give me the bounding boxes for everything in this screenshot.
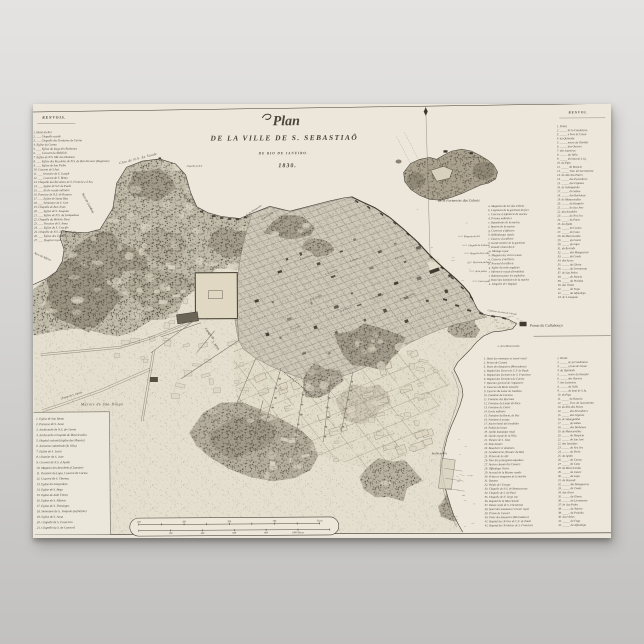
svg-text:3. Archeveche de N.S. de Carmo: 3. Archeveche de N.S. de Carmo [36,427,77,431]
svg-text:Fort. de la marche: Fort. de la marche [461,156,478,159]
svg-text:13. Eglise du Langridore: 13. Eglise du Langridore [36,482,68,486]
svg-text:Ile et Forteresse das Cobras: Ile et Forteresse das Cobras [436,199,479,203]
svg-text:Chapelle de la Bonne: Chapelle de la Bonne [468,244,491,247]
svg-text:Pointe du Callabouço: Pointe du Callabouço [528,324,562,328]
svg-text:2. Paroisse de S. Anne: 2. Paroisse de S. Anne [36,422,64,426]
svg-text:Saco do Alferez: Saco do Alferez [33,251,52,262]
svg-text:42. _____ da Alfandega: 42. _____ da Alfandega [558,523,586,527]
svg-text:12. Couvent de S. Theresa: 12. Couvent de S. Theresa [36,476,69,480]
svg-text:de la palais: de la palais [475,270,487,273]
svg-text:DE LA VILLE DE S. SEBASTIAÕ: DE LA VILLE DE S. SEBASTIAÕ [209,133,358,143]
svg-text:19. Eglise de S. Anna: 19. Eglise de S. Anna [36,515,63,519]
svg-text:42. Hopital des Tertiaires de: 42. Hopital des Tertiaires de S. Francis… [484,523,533,527]
svg-text:21. Chapelle du S. de Concord: 21. Chapelle du S. de Concord [36,526,74,530]
svg-text:18. Seminaire de S. Joaquim (o: 18. Seminaire de S. Joaquim (orphelins) [36,509,86,513]
svg-text:27. ___ Hospice royal: 27. ___ Hospice royal [34,238,61,242]
svg-text:Plan: Plan [272,114,300,129]
svg-text:DE RIO DE JANEIRO.: DE RIO DE JANEIRO. [257,151,308,155]
svg-text:6. Ancienne cathedrale (la Vil: 6. Ancienne cathedrale (la Villa) [36,444,76,448]
svg-text:1. Eglise de Sao Bento: 1. Eglise de Sao Bento [36,417,64,421]
svg-text:20. Chapelle de S. Francisco: 20. Chapelle de S. Francisco [36,520,72,524]
svg-text:1830.: 1830. [278,163,297,169]
svg-text:Jardin public: Jardin public [431,451,448,455]
svg-text:u. Chapelle de l Hopital: u. Chapelle de l Hopital [488,282,516,286]
svg-text:16. Eglise de S. Alfonso: 16. Eglise de S. Alfonso [36,498,66,502]
svg-text:8. Chantier de S. Jose: 8. Chantier de S. Jose [36,455,64,459]
svg-text:Toises: Toises [316,519,322,522]
svg-text:RENVOI.: RENVOI. [568,110,587,114]
svg-text:Cais royale: Cais royale [478,280,490,283]
svg-text:14. Eglise de S. Bego: 14. Eglise de S. Bego [36,487,63,491]
svg-text:10. Magasin des Recoletes (Cha: 10. Magasin des Recoletes (Chantier) [36,466,83,470]
svg-text:a. de la Misericordia: a. de la Misericordia [497,345,520,348]
svg-text:9. Couvent de N.S. d Ajuda: 9. Couvent de N.S. d Ajuda [36,460,70,464]
svg-text:Magazin du Sel: Magazin du Sel [463,235,480,238]
svg-text:Collecteur du canal de l Aurad: Collecteur du canal de l Aurade [487,309,517,316]
svg-text:43. de S.Joaquim: 43. de S.Joaquim [557,295,577,299]
svg-text:Saco de Gamboa: Saco de Gamboa [80,192,94,214]
svg-text:RENVOIS.: RENVOIS. [42,116,66,120]
svg-text:17. Eglise de S. Domingos: 17. Eglise de S. Domingos [36,504,69,508]
svg-text:1000 Metres: 1000 Metres [292,531,304,534]
svg-text:4. Archeveche et hopital de Mi: 4. Archeveche et hopital de Misericordia [36,433,87,437]
svg-text:Marais de São-Diogo: Marais de São-Diogo [80,402,124,406]
svg-text:7. Eglise de S. Luzia: 7. Eglise de S. Luzia [36,449,62,453]
svg-text:Chapelle de N.S.: Chapelle de N.S. [186,165,202,168]
svg-text:15. Eglise de Aide Freres: 15. Eglise de Aide Freres [36,493,68,497]
svg-text:5. Hopital colonial (eglise de: 5. Hopital colonial (eglise des Maures) [36,438,85,442]
svg-text:Morceau pecherie: Morceau pecherie [472,261,492,264]
svg-text:Magazin de la ville: Magazin de la ville [469,252,490,255]
